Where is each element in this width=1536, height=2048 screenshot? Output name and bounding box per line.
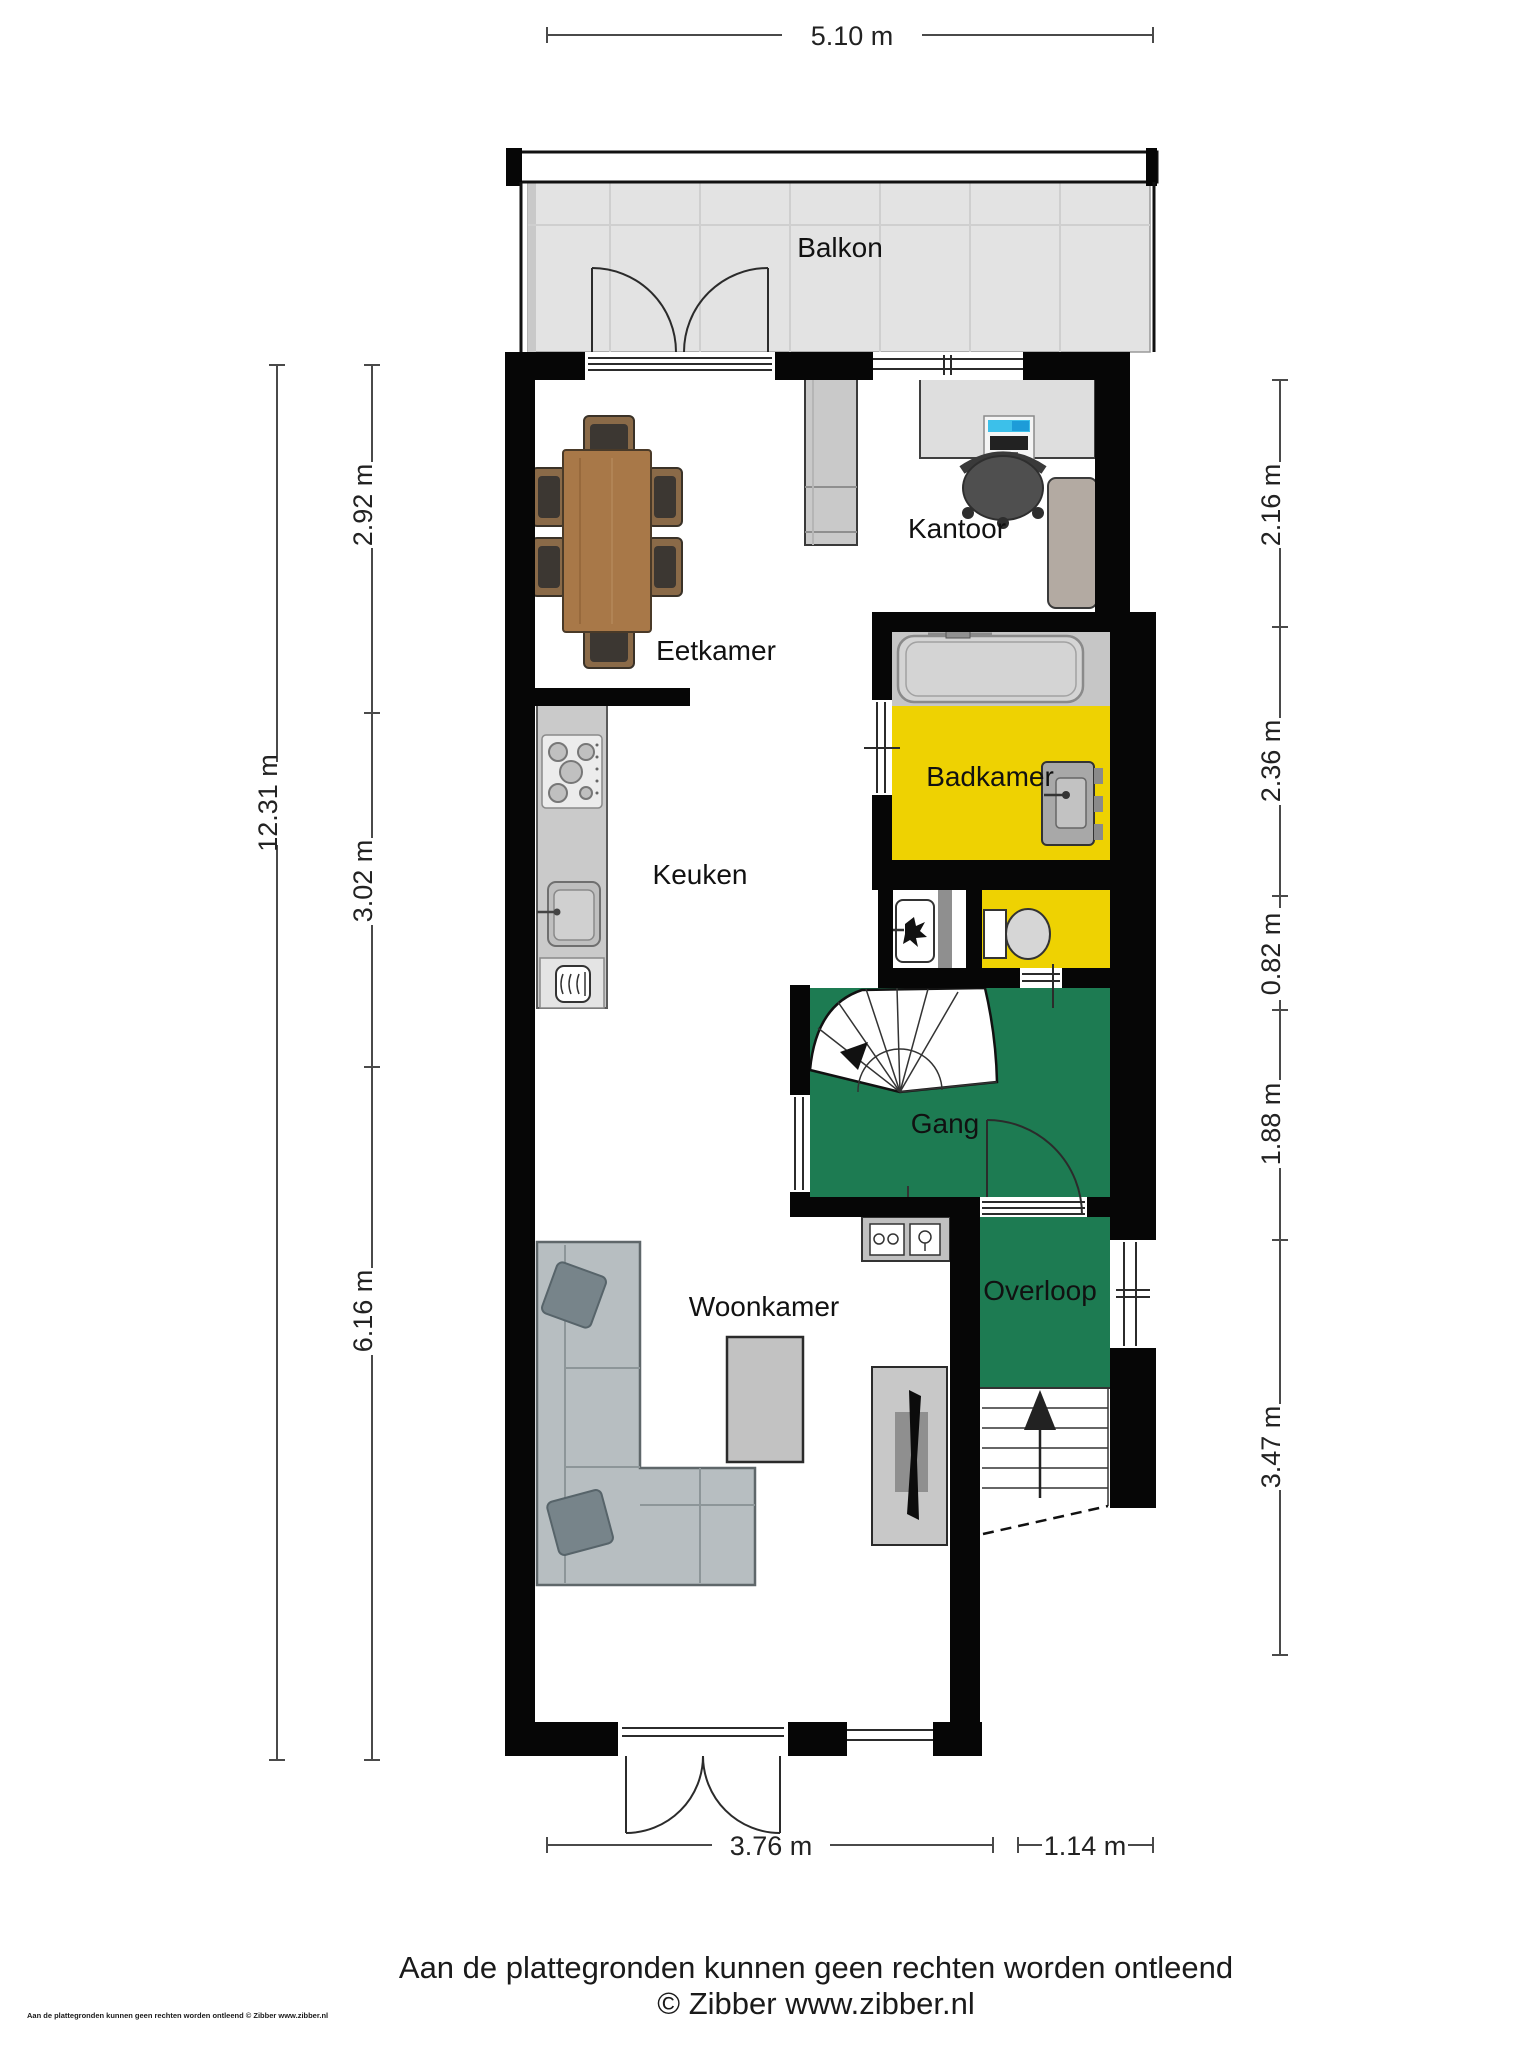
wall-right-office xyxy=(1095,352,1130,614)
svg-text:2.92 m: 2.92 m xyxy=(348,464,378,547)
balcony-railing-cap-right xyxy=(1146,148,1157,186)
footer-credit: © Zibber www.zibber.nl xyxy=(657,1986,974,2021)
dim-left-segments: 2.92 m 3.02 m 6.16 m xyxy=(348,365,380,1760)
room-label-eetkamer: Eetkamer xyxy=(656,635,776,666)
svg-text:6.16 m: 6.16 m xyxy=(348,1270,378,1353)
wall-right-stairs xyxy=(1110,1348,1156,1508)
room-label-badkamer: Badkamer xyxy=(926,761,1054,792)
footer: Aan de plattegronden kunnen geen rechten… xyxy=(27,1950,1233,2021)
kitchen xyxy=(537,705,607,1008)
svg-text:0.82 m: 0.82 m xyxy=(1256,913,1286,996)
dining-area xyxy=(532,416,682,668)
wall-hall-top-b xyxy=(1062,968,1110,988)
dim-right-segments: 2.16 m 2.36 m 0.82 m 1.88 m 3.47 m xyxy=(1256,380,1288,1655)
living-room xyxy=(537,1186,950,1585)
wall-bottom-a xyxy=(505,1722,618,1756)
svg-text:1.14 m: 1.14 m xyxy=(1044,1831,1127,1861)
stairs-winder xyxy=(810,988,997,1092)
balcony-railing-cap-left xyxy=(506,148,522,186)
svg-text:2.36 m: 2.36 m xyxy=(1256,720,1286,803)
tall-cabinet xyxy=(805,372,857,545)
svg-text:1.88 m: 1.88 m xyxy=(1256,1083,1286,1166)
wall-hall-top-a xyxy=(878,968,1020,988)
dishwasher-icon xyxy=(540,958,604,1008)
svg-text:3.47 m: 3.47 m xyxy=(1256,1406,1286,1489)
room-label-kantoor: Kantoor xyxy=(908,513,1006,544)
wardrobe-cabinet xyxy=(1048,478,1097,608)
landing-window xyxy=(1110,1240,1156,1348)
svg-text:3.76 m: 3.76 m xyxy=(730,1831,813,1861)
bathtub xyxy=(898,636,1083,702)
wall-left xyxy=(505,352,535,1756)
room-label-woonkamer: Woonkamer xyxy=(689,1291,839,1322)
dining-table xyxy=(563,450,651,632)
footer-disclaimer: Aan de plattegronden kunnen geen rechten… xyxy=(399,1950,1233,1985)
stove-icon xyxy=(542,735,602,808)
coffee-table xyxy=(727,1337,803,1462)
balcony-railing xyxy=(516,152,1157,182)
dim-bottom-segments: 3.76 m 1.14 m xyxy=(547,1831,1153,1861)
wall-bathroom-bottom xyxy=(872,860,1156,890)
room-label-keuken: Keuken xyxy=(653,859,748,890)
floor-plan-svg: Balkon Kantoor Eetkamer Badkamer Keuken … xyxy=(0,0,1536,2048)
dim-top-width: 5.10 m xyxy=(547,21,1153,51)
svg-text:12.31 m: 12.31 m xyxy=(253,754,283,852)
wall-office-bathroom xyxy=(872,612,1156,632)
room-label-balkon: Balkon xyxy=(797,232,883,263)
wall-hall-left-a xyxy=(790,985,810,1095)
corner-note: Aan de plattegronden kunnen geen rechten… xyxy=(27,2011,328,2020)
wall-right-mid xyxy=(1110,614,1156,1240)
svg-text:2.16 m: 2.16 m xyxy=(1256,464,1286,547)
wall-stairwell xyxy=(950,1197,980,1756)
office xyxy=(805,372,1097,608)
wall-bathroom-left-a xyxy=(872,612,892,700)
wall-kitchen-stub xyxy=(535,688,690,706)
room-label-overloop: Overloop xyxy=(983,1275,1097,1306)
wall-hall-bottom-b xyxy=(1087,1197,1110,1217)
garden-doors xyxy=(618,1722,788,1833)
stairs-straight xyxy=(980,1388,1110,1534)
svg-text:3.02 m: 3.02 m xyxy=(348,840,378,923)
toilet-bowl xyxy=(1006,909,1050,959)
stair-cut-line xyxy=(983,1506,1108,1534)
toilet-tank xyxy=(984,910,1006,958)
office-window xyxy=(873,352,1023,380)
hallway-side-opening xyxy=(790,1095,810,1192)
balcony-floor-edge xyxy=(528,182,536,352)
wall-top-b xyxy=(775,352,873,380)
dim-left-total: 12.31 m xyxy=(253,365,285,1760)
tv-cabinet xyxy=(872,1367,947,1545)
room-label-gang: Gang xyxy=(911,1108,980,1139)
balcony-floor xyxy=(528,182,1150,352)
living-room-window xyxy=(847,1722,933,1756)
svg-text:5.10 m: 5.10 m xyxy=(811,21,894,51)
wall-bottom-b xyxy=(788,1722,847,1756)
stair-arrow-head xyxy=(1024,1390,1056,1430)
